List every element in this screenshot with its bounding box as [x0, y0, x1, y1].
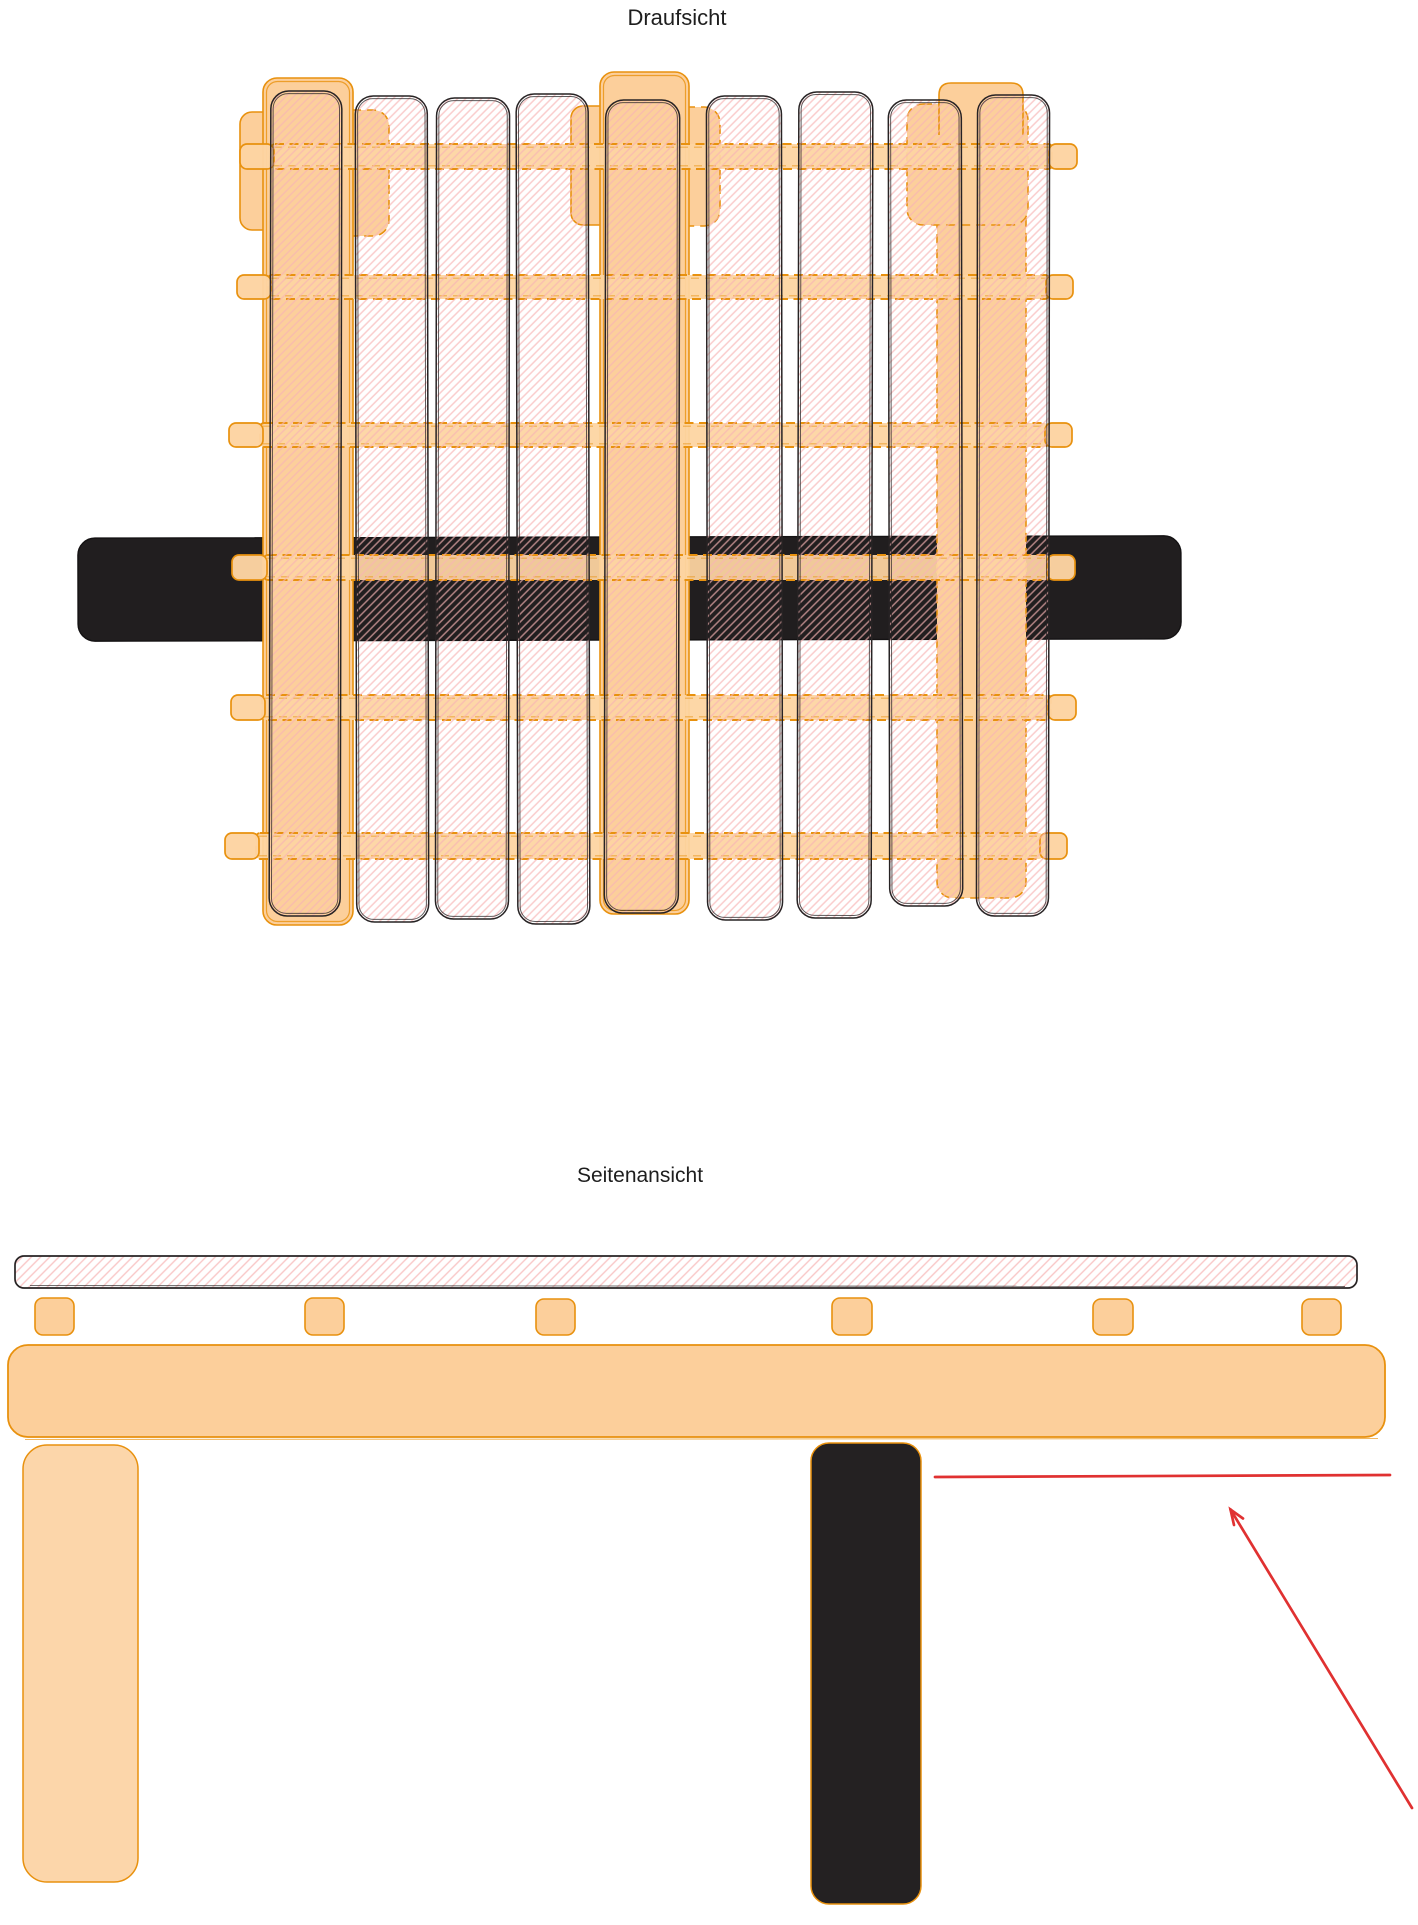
svg-text:Seitenansicht: Seitenansicht [577, 1164, 703, 1187]
svg-text:Draufsicht: Draufsicht [627, 5, 726, 30]
